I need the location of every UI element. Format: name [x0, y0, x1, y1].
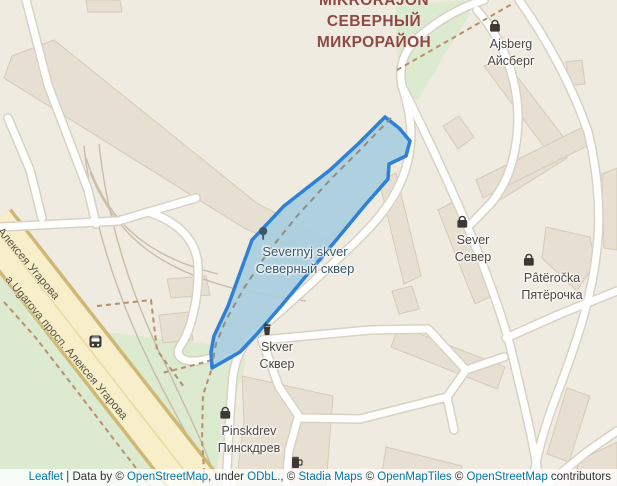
map-tiles: [0, 0, 617, 486]
attribution-segment: ©: [362, 471, 377, 483]
attribution-link[interactable]: Stadia Maps: [298, 471, 362, 483]
attribution-segment: contributors: [548, 471, 611, 483]
attribution-segment: , under: [208, 471, 247, 483]
attribution-text: Leaflet | Data by © OpenStreetMap, under…: [29, 471, 611, 483]
attribution-link[interactable]: OpenMapTiles: [377, 471, 451, 483]
attribution-bar: Leaflet | Data by © OpenStreetMap, under…: [0, 469, 617, 486]
attribution-link[interactable]: OpenStreetMap: [467, 471, 548, 483]
attribution-link[interactable]: Leaflet: [29, 471, 64, 483]
attribution-link[interactable]: ODbL.: [247, 471, 280, 483]
attribution-link[interactable]: OpenStreetMap: [127, 471, 208, 483]
attribution-segment: ©: [452, 471, 467, 483]
attribution-segment: | Data by ©: [63, 471, 127, 483]
attribution-segment: , ©: [280, 471, 298, 483]
map-canvas[interactable]: MIKRORAJON СЕВЕРНЫЙ МИКРОРАЙОН Алексея У…: [0, 0, 617, 486]
